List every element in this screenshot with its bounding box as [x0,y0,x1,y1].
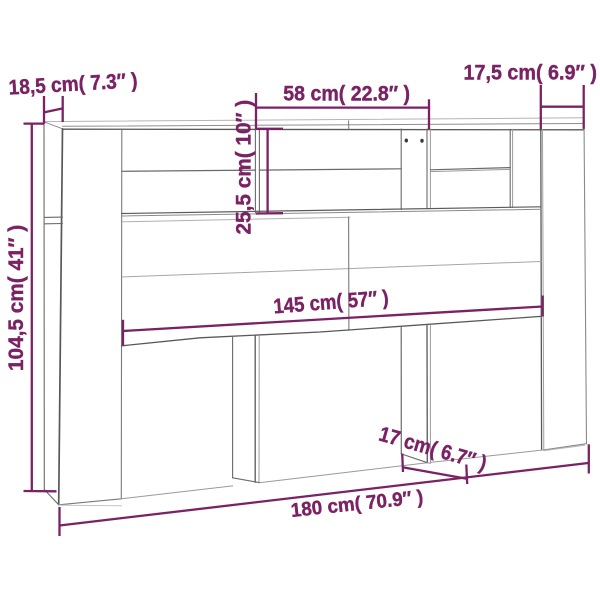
svg-text:17,5 cm( 6.9″ ): 17,5 cm( 6.9″ ) [464,62,598,85]
svg-text:58 cm( 22.8″ ): 58 cm( 22.8″ ) [283,83,410,106]
svg-text:104,5 cm( 41″ ): 104,5 cm( 41″ ) [5,225,28,371]
svg-text:18,5 cm( 7.3″ ): 18,5 cm( 7.3″ ) [8,69,138,99]
svg-text:180 cm( 70.9″ ): 180 cm( 70.9″ ) [290,487,424,522]
svg-text:17 cm( 6.7″ ): 17 cm( 6.7″ ) [376,423,489,476]
svg-text:25,5 cm( 10″ ): 25,5 cm( 10″ ) [232,100,255,235]
svg-text:145 cm( 57″ ): 145 cm( 57″ ) [273,287,390,319]
